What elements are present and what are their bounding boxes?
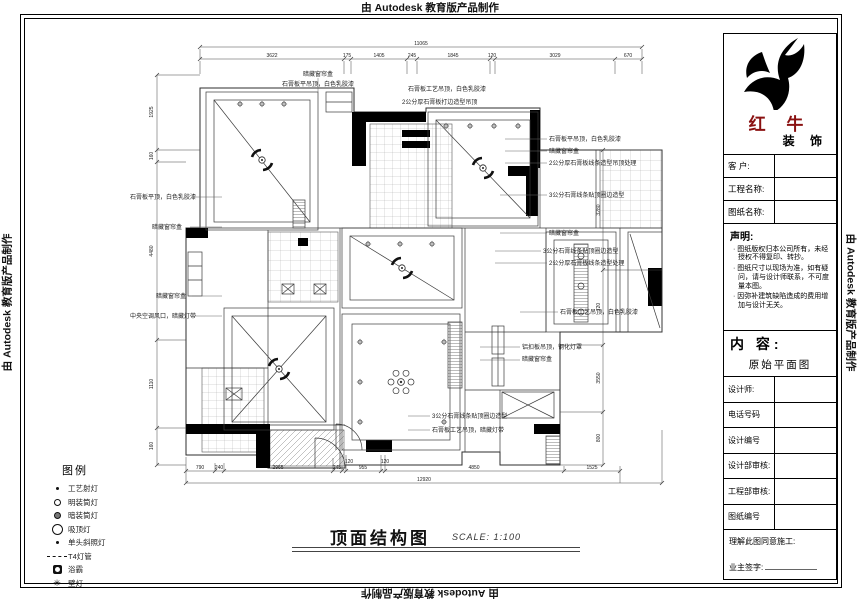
legend-item-label: 单头斜照灯 [68, 537, 106, 548]
legend-item-label: 暗装筒灯 [68, 510, 98, 521]
legend-item: 浴霸 [46, 563, 166, 577]
legend-item: 暗装筒灯 [46, 509, 166, 523]
legend-item: 单头斜照灯 [46, 536, 166, 550]
signature-line [765, 561, 817, 570]
dim-label: 4850 [468, 465, 479, 471]
field-design-no-label: 设计编号 [724, 428, 775, 452]
legend-title: 图例 [62, 462, 166, 478]
legend-symbol-icon [47, 556, 67, 557]
dim-label: 120 [381, 459, 390, 465]
dim-label: 120 [488, 53, 497, 59]
plan-label: 2公分厚石膏板打边造型吊顶 [402, 98, 477, 106]
dim-label: 3622 [266, 53, 277, 59]
field-eng-review: 工程部审核: [724, 479, 836, 504]
brand-subname: 装 饰 [783, 132, 828, 149]
content-value: 原始平面图 [730, 357, 830, 372]
field-client-label: 客 户: [724, 155, 775, 177]
field-sheet-name-label: 图纸名称: [724, 201, 775, 223]
owner-signature-label: 业主签字: [729, 563, 763, 572]
legend-symbol-icon [56, 541, 59, 544]
dim-label: 790 [196, 465, 205, 471]
legend-item-label: 工艺射灯 [68, 483, 98, 494]
dim-label: 955 [359, 465, 368, 471]
legend-symbol-icon [54, 499, 61, 506]
dim-label: 12920 [417, 477, 431, 483]
legend: 图例 工艺射灯明装筒灯暗装筒灯吸顶灯单头斜照灯T4灯管浴霸✳壁灯 [46, 462, 166, 590]
dim-label: 160 [149, 442, 155, 451]
field-phone-label: 电话号码 [724, 403, 775, 427]
plan-label: 2公分厚石膏板线条造型吊顶处理 [549, 159, 636, 167]
caption-rule-top [292, 547, 580, 548]
field-design-review-label: 设计部审核: [724, 454, 775, 478]
brand-logo-area: 红 牛 装 饰 [724, 34, 836, 155]
legend-item: 吸顶灯 [46, 523, 166, 537]
statement-block: 声明: 图纸版权归本公司所有，未经授权不得复印、转抄。 图纸尺寸以现场为准，如有… [724, 224, 836, 332]
agreement-text: 理解此图同意施工: [729, 536, 831, 547]
legend-item-label: 壁灯 [68, 578, 83, 589]
dim-label: 1525 [586, 465, 597, 471]
legend-symbol-icon [52, 524, 63, 535]
dim-label: 175 [343, 53, 352, 59]
dim-label: 1845 [447, 53, 458, 59]
legend-symbol-icon [54, 512, 61, 519]
caption-rule-bottom [292, 551, 580, 552]
title-block: 红 牛 装 饰 客 户: 工程名称: 图纸名称: 声明: 图纸版权归本公司所有，… [723, 33, 837, 580]
dim-label: 3029 [549, 53, 560, 59]
drawing-scale: SCALE: 1:100 [452, 532, 521, 542]
legend-item: 明装筒灯 [46, 496, 166, 510]
plan-label: 暗藏窗帘盒 [549, 229, 579, 237]
legend-item-label: T4灯管 [68, 551, 92, 562]
legend-item: T4灯管 [46, 550, 166, 564]
plan-label: 3公分石膏线条贴顶圈边造型 [432, 412, 507, 420]
dim-label: 800 [596, 434, 602, 443]
field-sheet-name: 图纸名称: [724, 201, 836, 224]
dim-label: 240 [215, 465, 224, 471]
plan-label: 石膏板平吊顶，白色乳胶漆 [549, 135, 621, 143]
field-project-name: 工程名称: [724, 178, 836, 201]
field-sheet-no: 图纸编号 [724, 505, 836, 530]
plan-label: 石膏板工艺吊顶，白色乳胶漆 [408, 85, 486, 93]
plan-label: 暗藏窗帘盒 [522, 355, 552, 363]
legend-item: 工艺射灯 [46, 482, 166, 496]
legend-symbol-icon [56, 487, 59, 490]
dim-label: 120 [345, 459, 354, 465]
legend-item-label: 吸顶灯 [68, 524, 91, 535]
statement-item: 因弥补建筑缺陷造成的费用增加与设计无关。 [738, 293, 832, 311]
content-heading: 内 容: [730, 334, 830, 354]
field-eng-review-label: 工程部审核: [724, 479, 775, 503]
field-designer: 设计师: [724, 377, 836, 402]
dim-label: 4480 [149, 245, 155, 256]
field-project-name-label: 工程名称: [724, 178, 775, 200]
dim-label: 11065 [414, 41, 428, 47]
dim-label: 245 [333, 465, 342, 471]
plan-label: 暗藏窗帘盒 [303, 70, 333, 78]
legend-item: ✳壁灯 [46, 577, 166, 591]
drawing-sheet: 由 Autodesk 教育版产品制作 由 Autodesk 教育版产品制作 由 … [0, 0, 860, 602]
drawing-title: 顶面结构图 [330, 524, 430, 549]
dim-label: 1405 [373, 53, 384, 59]
statement-item: 图纸版权归本公司所有，未经授权不得复印、转抄。 [738, 246, 832, 264]
legend-item-label: 浴霸 [68, 564, 83, 575]
plan-label: 暗藏窗帘盒 [156, 292, 186, 300]
dim-label: 2965 [272, 465, 283, 471]
dim-label: 245 [408, 53, 417, 59]
dim-label: 670 [624, 53, 633, 59]
legend-item-label: 明装筒灯 [68, 497, 98, 508]
field-designer-label: 设计师: [724, 377, 775, 401]
redbull-logo-icon [724, 34, 838, 110]
dim-label: 1925 [149, 106, 155, 117]
plan-label: 石膏板工艺吊顶，暗藏灯带 [432, 426, 504, 434]
field-sheet-no-label: 图纸编号 [724, 505, 775, 529]
legend-symbol-icon: ✳ [53, 579, 61, 588]
plan-label: 石膏板平顶，白色乳胶漆 [130, 193, 196, 201]
field-client: 客 户: [724, 155, 836, 178]
plan-label: 暗藏窗帘盒 [152, 223, 182, 231]
dim-label: 3280 [596, 204, 602, 215]
field-design-review: 设计部审核: [724, 454, 836, 479]
signature-block: 理解此图同意施工: 业主签字: [724, 530, 836, 579]
statement-item: 图纸尺寸以现场为准，如有疑问，请与设计师联系，不可度量本图。 [738, 265, 832, 291]
plan-label: 石膏板平吊顶，白色乳胶漆 [282, 80, 354, 88]
field-design-no: 设计编号 [724, 428, 836, 453]
dim-label: 160 [149, 152, 155, 161]
dim-label: 720 [596, 303, 602, 312]
plan-label: 暗藏窗帘盒 [549, 147, 579, 155]
statement-heading: 声明: [730, 228, 832, 243]
plan-label: 2公分厚石膏板线条造型处理 [549, 259, 624, 267]
plan-label: 3公分石膏线条贴顶圈边造型 [543, 247, 618, 255]
plan-label: 中央空调风口，暗藏灯带 [130, 312, 196, 320]
dim-label: 1110 [149, 379, 155, 390]
legend-symbol-icon [53, 565, 62, 574]
field-phone: 电话号码 [724, 403, 836, 428]
legend-list: 工艺射灯明装筒灯暗装筒灯吸顶灯单头斜照灯T4灯管浴霸✳壁灯 [46, 482, 166, 590]
plan-label: 铝扣板吊顶，钢化灯罩 [522, 343, 582, 351]
plan-label: 3公分石膏线条贴顶圈边造型 [549, 191, 624, 199]
content-block: 内 容: 原始平面图 [724, 331, 836, 377]
dim-label: 3550 [596, 372, 602, 383]
